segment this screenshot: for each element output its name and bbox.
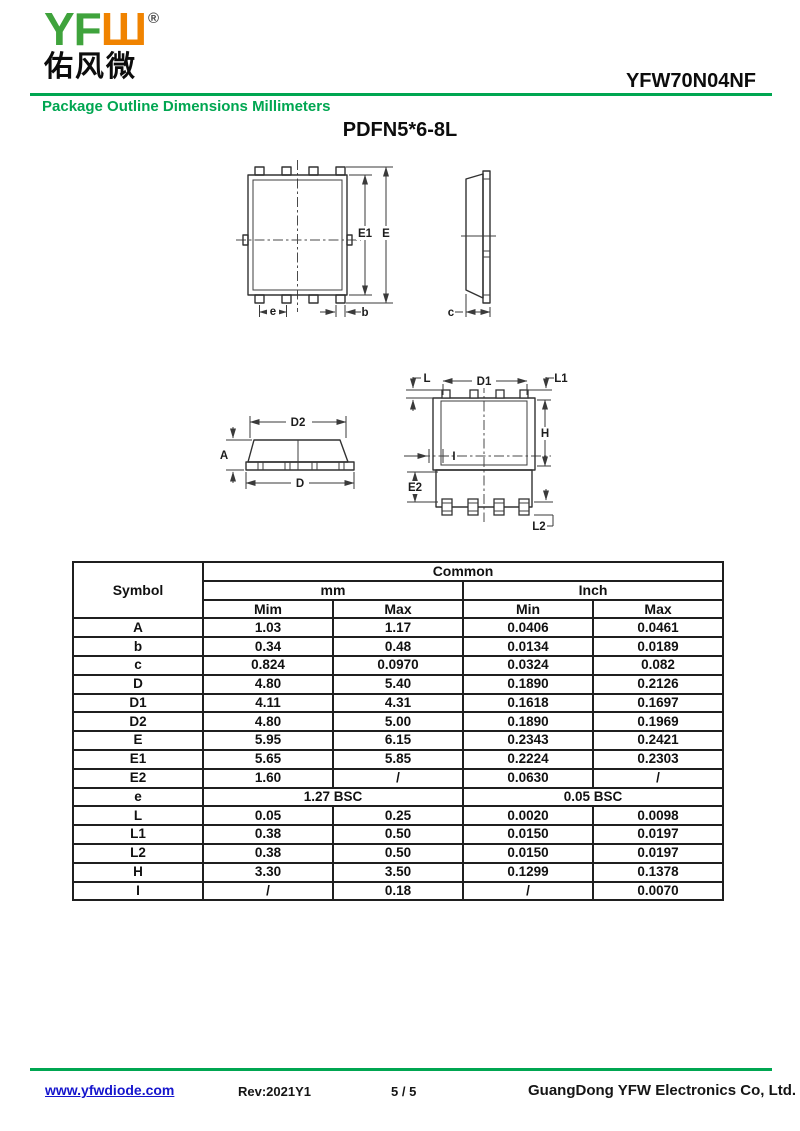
table-cell: 5.65 <box>203 750 333 769</box>
dim-row-L: L0.050.250.00200.0098 <box>73 806 723 825</box>
package-outline-diagrams: E1 E e b <box>0 150 800 562</box>
table-cell: 0.05 BSC <box>463 788 723 807</box>
dim-label-e-cap: E <box>382 228 390 240</box>
symbol-cell: D1 <box>73 694 203 713</box>
dim-label-e1: E1 <box>358 228 373 240</box>
table-cell: 5.95 <box>203 731 333 750</box>
profile-view-diagram: D2 A D <box>220 415 354 490</box>
dim-row-H: H3.303.500.12990.1378 <box>73 863 723 882</box>
table-cell: 0.50 <box>333 844 463 863</box>
logo-chinese-name: 佑风微 <box>44 53 158 82</box>
symbol-cell: L <box>73 806 203 825</box>
table-cell: 0.0630 <box>463 769 593 788</box>
table-cell: 5.40 <box>333 675 463 694</box>
table-cell: 0.0070 <box>593 882 723 901</box>
table-cell: 0.0406 <box>463 618 593 637</box>
part-number: YFW70N04NF <box>626 70 756 93</box>
table-cell: 0.824 <box>203 656 333 675</box>
symbol-cell: E2 <box>73 769 203 788</box>
dim-label-l2: L2 <box>532 521 545 533</box>
symbol-cell: I <box>73 882 203 901</box>
table-cell: 1.60 <box>203 769 333 788</box>
table-cell: 6.15 <box>333 731 463 750</box>
table-cell: 3.30 <box>203 863 333 882</box>
table-cell: 0.34 <box>203 637 333 656</box>
table-cell: 0.2421 <box>593 731 723 750</box>
column-header-mm-max: Max <box>333 600 463 619</box>
table-cell: 1.27 BSC <box>203 788 463 807</box>
table-cell: 3.50 <box>333 863 463 882</box>
column-header-mm-min: Mim <box>203 600 333 619</box>
table-cell: 0.0098 <box>593 806 723 825</box>
symbol-cell: D <box>73 675 203 694</box>
table-cell: 0.25 <box>333 806 463 825</box>
table-cell: 0.38 <box>203 844 333 863</box>
footer-green-rule <box>30 1068 772 1071</box>
symbol-cell: L2 <box>73 844 203 863</box>
table-cell: 0.2343 <box>463 731 593 750</box>
side-view-diagram: c <box>448 171 496 319</box>
page-number: 5 / 5 <box>391 1084 416 1099</box>
dim-label-e: e <box>270 306 276 318</box>
table-cell: 0.38 <box>203 825 333 844</box>
dim-label-c: c <box>448 307 455 319</box>
dim-label-l: L <box>423 373 430 385</box>
dim-row-c: c0.8240.09700.03240.082 <box>73 656 723 675</box>
table-cell: 0.2224 <box>463 750 593 769</box>
table-cell: 0.0134 <box>463 637 593 656</box>
table-cell: 0.0189 <box>593 637 723 656</box>
logo-letters-yf: YF <box>44 3 101 55</box>
logo-letter-w: Ш <box>101 3 146 55</box>
yfw-logo: YFШ® 佑风微 <box>44 6 158 82</box>
company-name: GuangDong YFW Electronics Co, Ltd. <box>528 1082 796 1099</box>
dim-row-E1: E15.655.850.22240.2303 <box>73 750 723 769</box>
table-cell: 0.2126 <box>593 675 723 694</box>
table-cell: 0.0197 <box>593 844 723 863</box>
table-cell: / <box>333 769 463 788</box>
table-cell: 0.1969 <box>593 712 723 731</box>
table-cell: 0.0970 <box>333 656 463 675</box>
dim-row-D: D4.805.400.18900.2126 <box>73 675 723 694</box>
dim-row-b: b0.340.480.01340.0189 <box>73 637 723 656</box>
table-cell: 4.80 <box>203 675 333 694</box>
table-cell: / <box>593 769 723 788</box>
table-cell: 0.18 <box>333 882 463 901</box>
table-header-row-common: Symbol Common <box>73 562 723 581</box>
table-cell: 0.1378 <box>593 863 723 882</box>
table-cell: 0.0150 <box>463 844 593 863</box>
table-cell: 0.48 <box>333 637 463 656</box>
table-cell: 1.03 <box>203 618 333 637</box>
datasheet-page: YFШ® 佑风微 YFW70N04NF Package Outline Dime… <box>0 0 800 1131</box>
symbol-cell: A <box>73 618 203 637</box>
column-header-common: Common <box>203 562 723 581</box>
table-cell: 0.0150 <box>463 825 593 844</box>
column-header-symbol: Symbol <box>73 562 203 618</box>
column-header-inch-max: Max <box>593 600 723 619</box>
table-cell: 0.2303 <box>593 750 723 769</box>
dim-label-l1: L1 <box>554 373 568 385</box>
dim-label-b: b <box>361 307 368 319</box>
dim-row-I: I/0.18/0.0070 <box>73 882 723 901</box>
yfw-logo-mark: YFШ® <box>44 6 158 52</box>
table-cell: / <box>463 882 593 901</box>
symbol-cell: c <box>73 656 203 675</box>
symbol-cell: e <box>73 788 203 807</box>
table-cell: 0.1618 <box>463 694 593 713</box>
column-header-mm: mm <box>203 581 463 600</box>
bottom-view-diagram: D1 L L1 H E2 L2 I <box>404 373 568 533</box>
dim-row-E: E5.956.150.23430.2421 <box>73 731 723 750</box>
header-green-rule <box>30 93 772 96</box>
symbol-cell: D2 <box>73 712 203 731</box>
symbol-cell: E1 <box>73 750 203 769</box>
dim-row-D2: D24.805.000.18900.1969 <box>73 712 723 731</box>
symbol-cell: E <box>73 731 203 750</box>
table-cell: 0.0197 <box>593 825 723 844</box>
dim-row-A: A1.031.170.04060.0461 <box>73 618 723 637</box>
package-title: PDFN5*6-8L <box>0 119 800 142</box>
dim-label-e2: E2 <box>408 482 422 494</box>
dimensions-table: Symbol Common mm Inch Mim Max Min Max A1… <box>72 561 724 901</box>
table-cell: / <box>203 882 333 901</box>
column-header-inch-min: Min <box>463 600 593 619</box>
dim-label-d: D <box>296 478 304 490</box>
dim-row-L2: L20.380.500.01500.0197 <box>73 844 723 863</box>
dim-row-L1: L10.380.500.01500.0197 <box>73 825 723 844</box>
table-cell: 0.0461 <box>593 618 723 637</box>
dim-label-h: H <box>541 428 549 440</box>
section-title: Package Outline Dimensions Millimeters <box>42 98 330 115</box>
table-cell: 0.05 <box>203 806 333 825</box>
dim-row-e: e1.27 BSC0.05 BSC <box>73 788 723 807</box>
table-cell: 5.85 <box>333 750 463 769</box>
table-cell: 4.11 <box>203 694 333 713</box>
symbol-cell: b <box>73 637 203 656</box>
dim-label-d2: D2 <box>291 417 306 429</box>
table-cell: 0.1299 <box>463 863 593 882</box>
column-header-inch: Inch <box>463 581 723 600</box>
symbol-cell: L1 <box>73 825 203 844</box>
registered-trademark-icon: ® <box>148 10 158 27</box>
table-cell: 0.50 <box>333 825 463 844</box>
dim-row-D1: D14.114.310.16180.1697 <box>73 694 723 713</box>
table-cell: 4.31 <box>333 694 463 713</box>
table-cell: 0.0020 <box>463 806 593 825</box>
table-cell: 5.00 <box>333 712 463 731</box>
revision-label: Rev:2021Y1 <box>238 1084 311 1099</box>
dim-row-E2: E21.60/0.0630/ <box>73 769 723 788</box>
dim-label-a: A <box>220 450 228 462</box>
website-link[interactable]: www.yfwdiode.com <box>45 1082 174 1098</box>
table-cell: 0.082 <box>593 656 723 675</box>
top-view-diagram: E1 E e b <box>236 160 394 319</box>
table-cell: 4.80 <box>203 712 333 731</box>
table-cell: 0.1697 <box>593 694 723 713</box>
table-cell: 0.1890 <box>463 675 593 694</box>
symbol-cell: H <box>73 863 203 882</box>
table-cell: 0.1890 <box>463 712 593 731</box>
dim-label-d1: D1 <box>477 376 492 388</box>
table-cell: 1.17 <box>333 618 463 637</box>
dim-label-i: I <box>452 451 455 463</box>
table-cell: 0.0324 <box>463 656 593 675</box>
